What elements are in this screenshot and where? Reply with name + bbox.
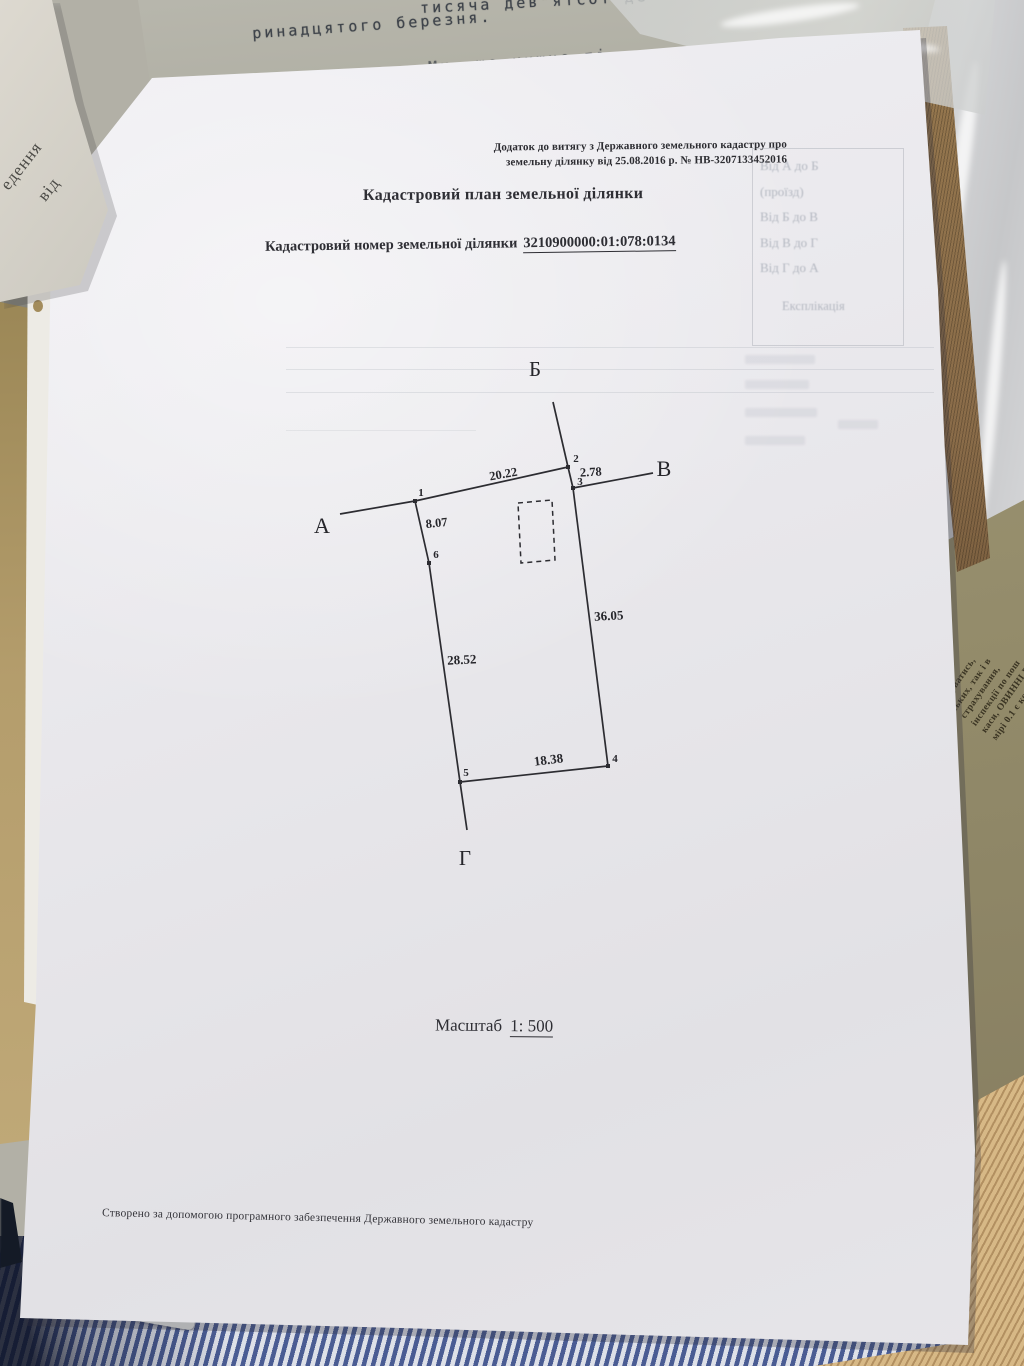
bleed-line: Від В до Г bbox=[760, 230, 910, 256]
photo-of-cadastral-plan: казуватись, ських, так і в страхування, … bbox=[0, 0, 1024, 1366]
diagram-label: А bbox=[314, 513, 330, 538]
vertex-marker bbox=[571, 486, 575, 490]
cadastral-number-line: Кадастровий номер земельної ділянки32109… bbox=[265, 233, 676, 256]
vertex-marker bbox=[427, 561, 431, 565]
cadastral-plan-page: Додаток до витягу з Державного земельног… bbox=[0, 0, 1024, 1366]
boundary-line bbox=[429, 563, 460, 782]
boundary-line bbox=[568, 467, 573, 488]
bleed-blob bbox=[745, 408, 817, 417]
boundary-line bbox=[573, 488, 608, 766]
measurement-label: 20.22 bbox=[488, 465, 518, 484]
scale-line: Масштаб1: 500 bbox=[435, 1015, 553, 1036]
cadastral-number-value: 3210900000:01:078:0134 bbox=[523, 233, 675, 253]
bleed-line: Від Б до В bbox=[760, 204, 910, 230]
diagram-label: В bbox=[657, 456, 672, 481]
boundary-line bbox=[553, 402, 568, 467]
measurement-label: 8.07 bbox=[425, 515, 448, 531]
bleed-blob bbox=[745, 436, 805, 445]
bleed-line: Експлікація bbox=[782, 299, 845, 314]
boundary-line bbox=[460, 782, 467, 830]
scale-value: 1: 500 bbox=[510, 1016, 553, 1037]
diagram-label: 4 bbox=[612, 753, 618, 765]
bleed-blob bbox=[745, 355, 815, 364]
bleed-blob bbox=[838, 420, 878, 429]
boundary-line bbox=[340, 501, 415, 514]
bleed-line: (проїзд) bbox=[760, 179, 910, 205]
scale-label: Масштаб bbox=[435, 1015, 502, 1035]
measurement-label: 36.05 bbox=[594, 607, 624, 624]
plastic-glare bbox=[720, 0, 861, 32]
boundary-line bbox=[415, 501, 429, 563]
diagram-label: Б bbox=[529, 357, 541, 381]
measurement-label: 28.52 bbox=[447, 651, 477, 668]
cadastral-number-label: Кадастровий номер земельної ділянки bbox=[265, 235, 518, 255]
generated-by-note: Створено за допомогою програмного забезп… bbox=[102, 1207, 534, 1229]
building-outline-dashed bbox=[518, 500, 555, 563]
annex-note: Додаток до витягу з Державного земельног… bbox=[487, 137, 787, 170]
diagram-label: 1 bbox=[418, 487, 424, 499]
vertex-marker bbox=[458, 780, 462, 784]
bleed-line: Від Г до А bbox=[760, 255, 910, 281]
diagram-label: 2 bbox=[573, 453, 579, 465]
bleed-line: Від А до Б bbox=[760, 153, 910, 179]
measurement-label: 18.38 bbox=[533, 750, 564, 769]
measurement-label: 2.78 bbox=[580, 464, 603, 479]
page-title: Кадастровий план земельної ділянки bbox=[363, 185, 643, 205]
diagram-label: 6 bbox=[433, 549, 439, 561]
typewriter-text: ринадцятого березня. bbox=[252, 8, 493, 43]
vertex-marker bbox=[413, 499, 417, 503]
vertex-marker bbox=[566, 465, 570, 469]
annex-note-line2: земельну ділянку від 25.08.2016 р. № НВ-… bbox=[487, 152, 787, 170]
vertex-marker bbox=[606, 764, 610, 768]
bleed-blob bbox=[745, 380, 809, 389]
diagram-label: Г bbox=[459, 846, 471, 870]
diagram-label: 5 bbox=[463, 767, 469, 779]
parcel-diagram: БВАГ12345620.222.788.0728.5236.0518.38 bbox=[290, 340, 690, 880]
bleed-through-text: Від А до Б (проїзд) Від Б до В Від В до … bbox=[760, 153, 910, 281]
